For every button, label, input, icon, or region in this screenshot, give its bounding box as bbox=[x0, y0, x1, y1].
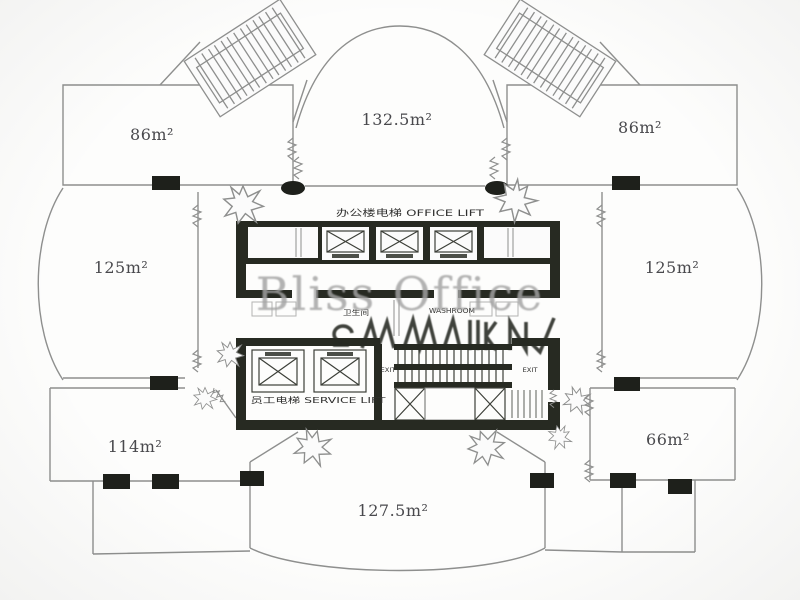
office-lift-label: 办公楼电梯 OFFICE LIFT bbox=[336, 207, 485, 219]
floor-plan-drawing: 86m² 132.5m² 86m² 125m² 125m² 114m² 66m²… bbox=[0, 0, 800, 600]
distorted-watermark bbox=[333, 318, 554, 352]
round-column-left bbox=[281, 181, 305, 195]
room-left-office: 125m² bbox=[94, 258, 149, 277]
room-area-label: 132.5m² bbox=[362, 110, 433, 129]
service-lift-room bbox=[236, 338, 382, 430]
exit-label-right: EXIT bbox=[523, 367, 538, 374]
stairwell-top-right bbox=[484, 0, 616, 117]
office-lift-bank bbox=[236, 221, 560, 264]
room-area-label: 66m² bbox=[646, 430, 690, 449]
room-right-office: 125m² bbox=[645, 258, 700, 277]
service-lift-label: 员工电梯 SERVICE LIFT bbox=[251, 395, 386, 405]
core-right-wall-upper bbox=[548, 338, 560, 390]
service-lift-shaft-2 bbox=[314, 350, 366, 392]
service-lift-shaft-1 bbox=[252, 350, 304, 392]
room-area-label: 86m² bbox=[130, 125, 174, 144]
core-bottom-wall bbox=[236, 420, 560, 430]
internal-staircase bbox=[394, 344, 542, 418]
room-bottom-left-office: 114m² bbox=[108, 437, 163, 456]
floor-plan-scan: 86m² 132.5m² 86m² 125m² 125m² 114m² 66m²… bbox=[0, 0, 800, 600]
room-bottom-right-office: 66m² bbox=[646, 430, 690, 449]
room-top-right-office: 86m² bbox=[618, 118, 662, 137]
room-area-label: 86m² bbox=[618, 118, 662, 137]
room-area-label: 127.5m² bbox=[358, 501, 429, 520]
exit-shafts bbox=[395, 388, 505, 420]
exit-label-left: EXIT bbox=[381, 367, 396, 374]
room-top-center-office: 132.5m² bbox=[362, 110, 433, 129]
room-area-label: 125m² bbox=[645, 258, 700, 277]
room-area-label: 114m² bbox=[108, 437, 163, 456]
room-area-label: 125m² bbox=[94, 258, 149, 277]
stairwell-top-left bbox=[184, 0, 316, 117]
room-bottom-center-office: 127.5m² bbox=[358, 501, 429, 520]
room-top-left-office: 86m² bbox=[130, 125, 174, 144]
watermark-text: Bliss Office bbox=[256, 267, 545, 321]
